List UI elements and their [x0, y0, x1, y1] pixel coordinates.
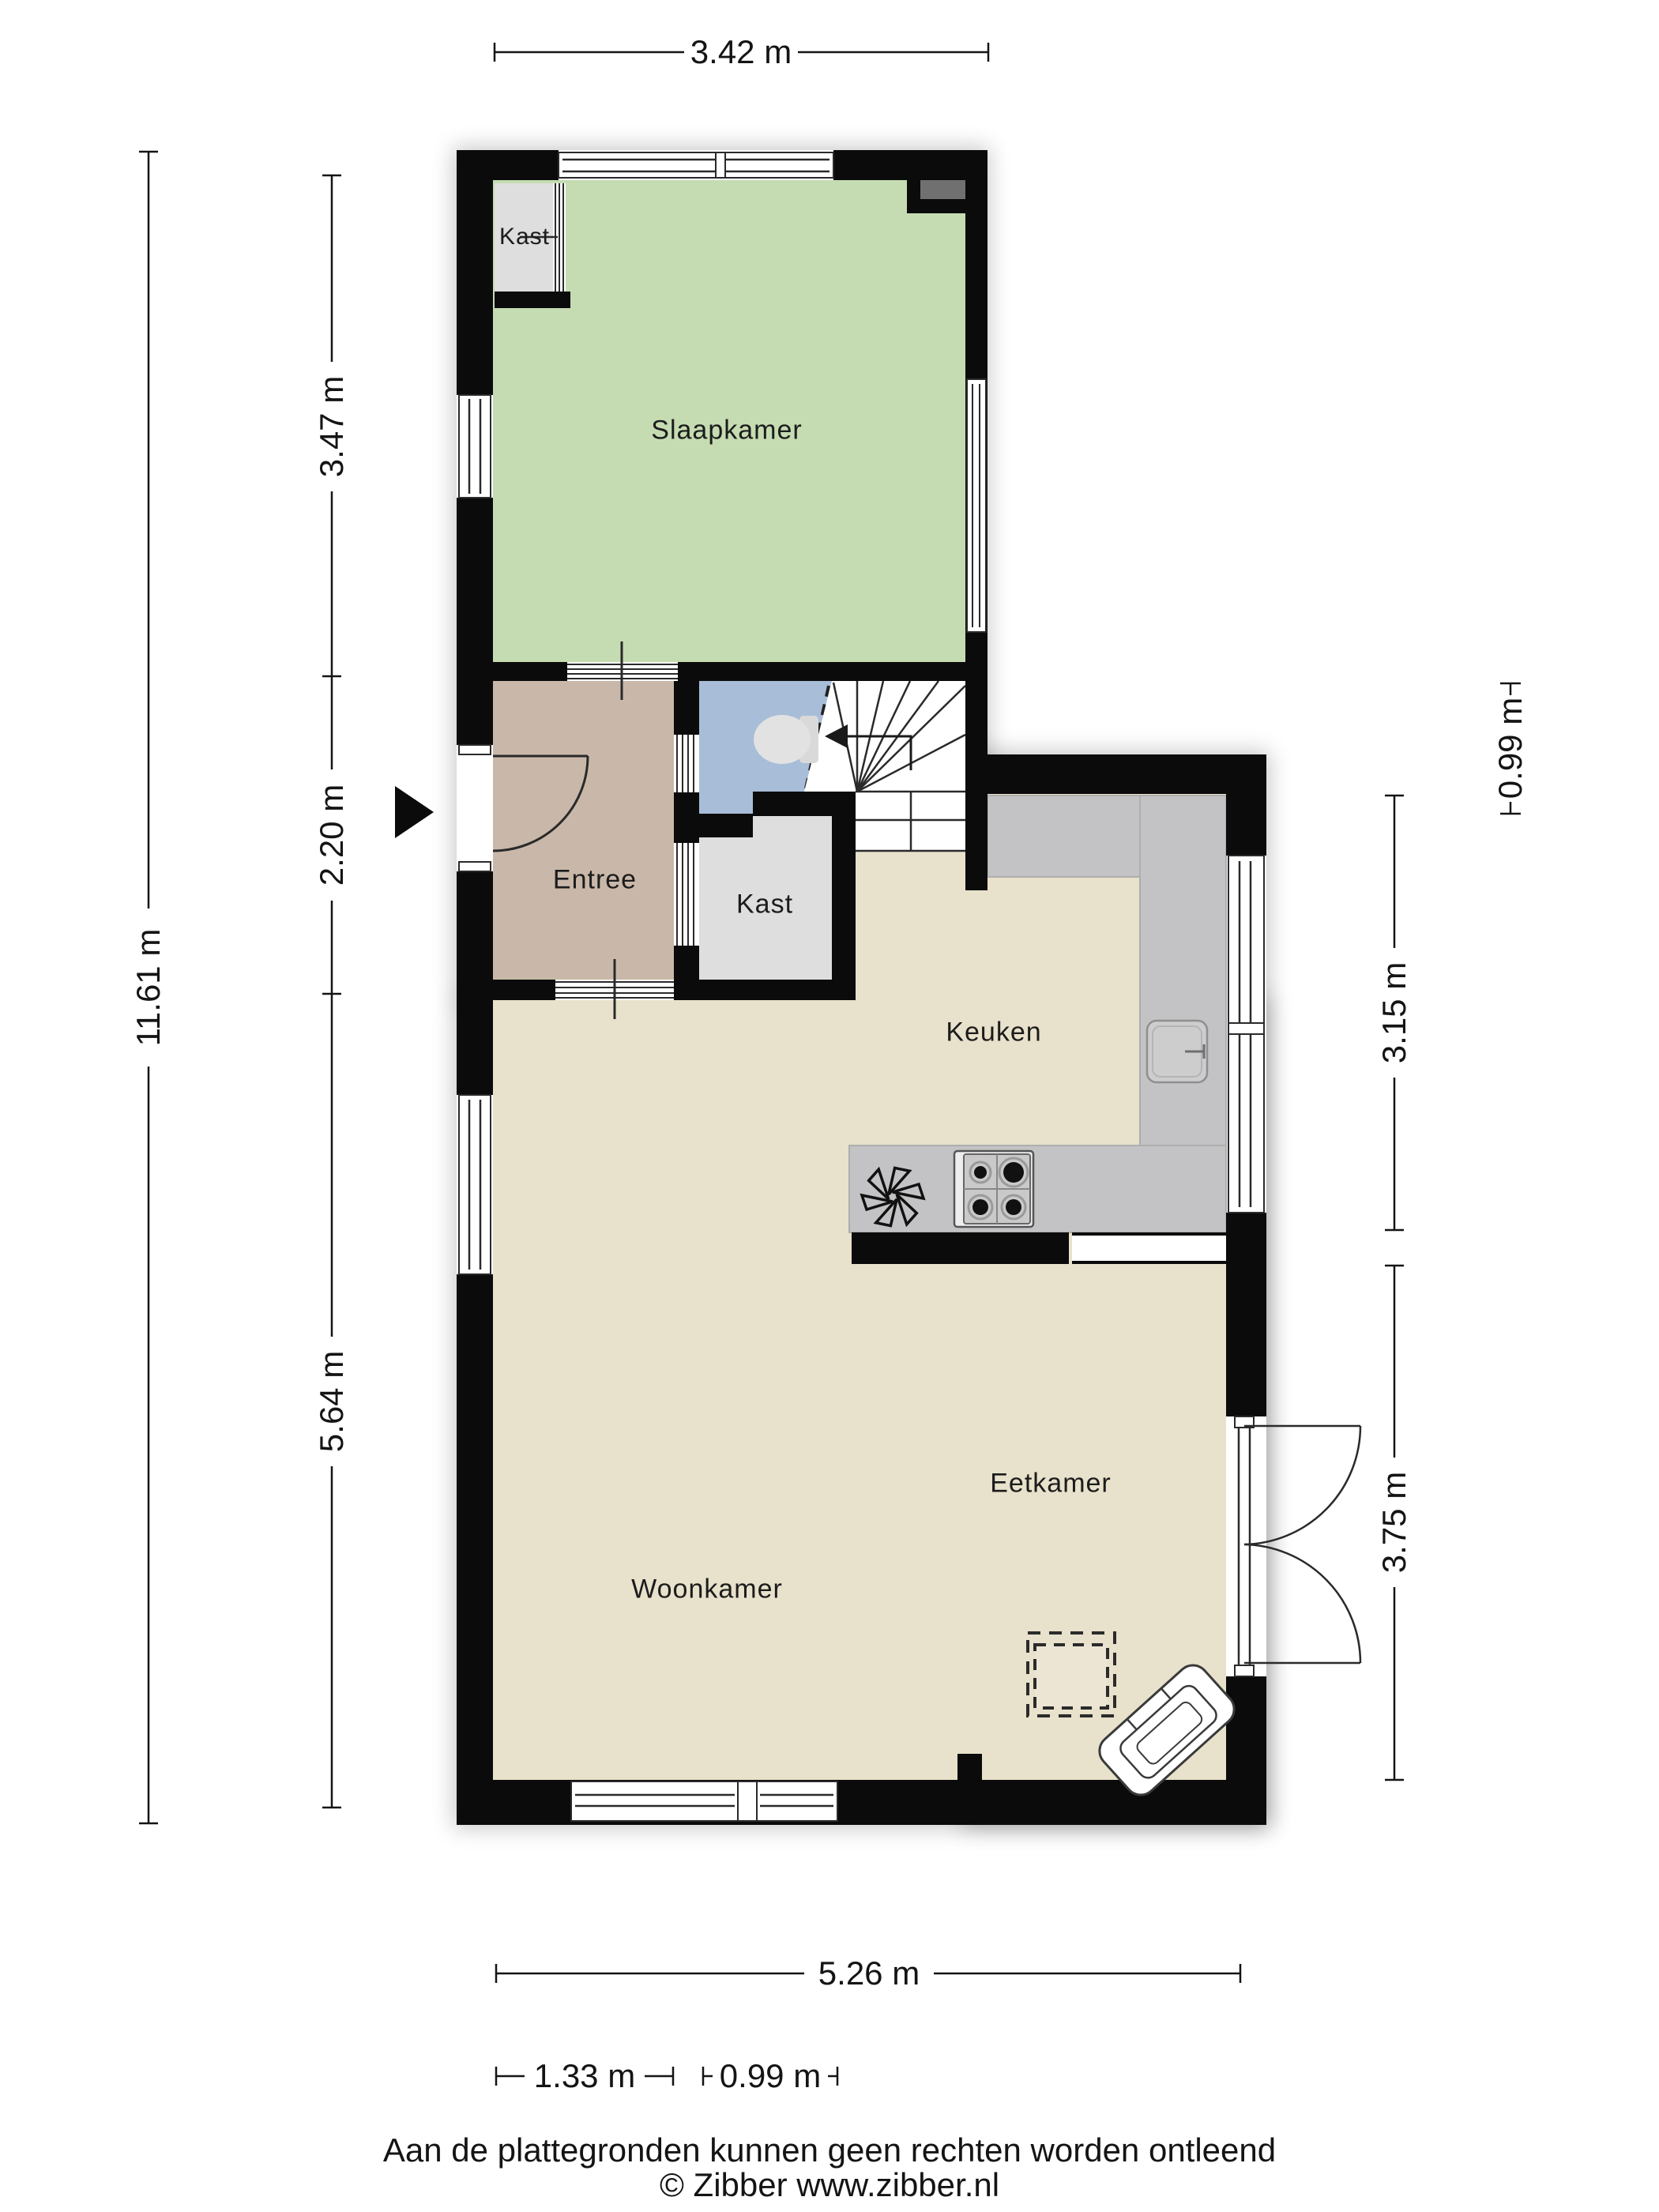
dim-bottom-total: 5.26 m — [818, 1954, 920, 1992]
room-label-keuken: Keuken — [946, 1018, 1041, 1048]
dim-right-offset: 0.99 m — [1492, 698, 1529, 799]
room-label-woonkamer: Woonkamer — [631, 1574, 783, 1605]
footer-disclaimer: Aan de plattegronden kunnen geen rechten… — [383, 2131, 1276, 2169]
window-top — [559, 152, 833, 178]
ventilation-icon — [862, 1164, 924, 1230]
toilet-icon — [754, 715, 818, 764]
front-door — [457, 745, 588, 871]
door-kast-mid — [674, 843, 699, 946]
dim-bottom-mid: 0.99 m — [720, 2057, 821, 2095]
door-toilet — [674, 735, 699, 792]
dim-top-width: 3.42 m — [690, 33, 792, 71]
french-doors — [1226, 1416, 1360, 1676]
dim-left-top: 3.47 m — [313, 376, 351, 477]
window-kitchen — [1228, 856, 1264, 1213]
room-label-kast-top: Kast — [499, 224, 550, 250]
dim-right-dining: 3.75 m — [1375, 1472, 1413, 1573]
footer-copyright: © Zibber www.zibber.nl — [660, 2166, 999, 2204]
dim-left-mid: 2.20 m — [313, 784, 351, 886]
window-left-bedroom — [459, 395, 491, 498]
dimension-lines — [139, 43, 1521, 2086]
entrance-arrow-icon — [395, 786, 434, 838]
dim-bottom-left: 1.33 m — [534, 2057, 635, 2095]
window-right-bedroom — [967, 379, 986, 632]
window-bottom — [571, 1781, 837, 1821]
dim-left-total: 11.61 m — [130, 929, 167, 1047]
door-living — [555, 959, 674, 1019]
window-left-living — [459, 1095, 491, 1274]
sink-icon — [1147, 1021, 1207, 1082]
room-label-kast-mid: Kast — [736, 890, 793, 920]
counter-opening — [1072, 1232, 1226, 1264]
dim-right-kitchen: 3.15 m — [1375, 962, 1413, 1063]
rug-outline — [1028, 1633, 1115, 1716]
room-label-slaapkamer: Slaapkamer — [651, 416, 802, 446]
stair-direction-arrow — [825, 724, 911, 770]
floorplan-page: Kast Slaapkamer Entree Kast Keuken Eetka… — [0, 0, 1659, 2212]
door-bedroom — [567, 641, 678, 700]
room-label-entree: Entree — [553, 865, 637, 896]
room-label-eetkamer: Eetkamer — [990, 1469, 1112, 1499]
dim-left-bottom: 5.64 m — [313, 1351, 351, 1452]
stove-icon — [954, 1151, 1033, 1227]
chimney-flue — [920, 180, 965, 199]
